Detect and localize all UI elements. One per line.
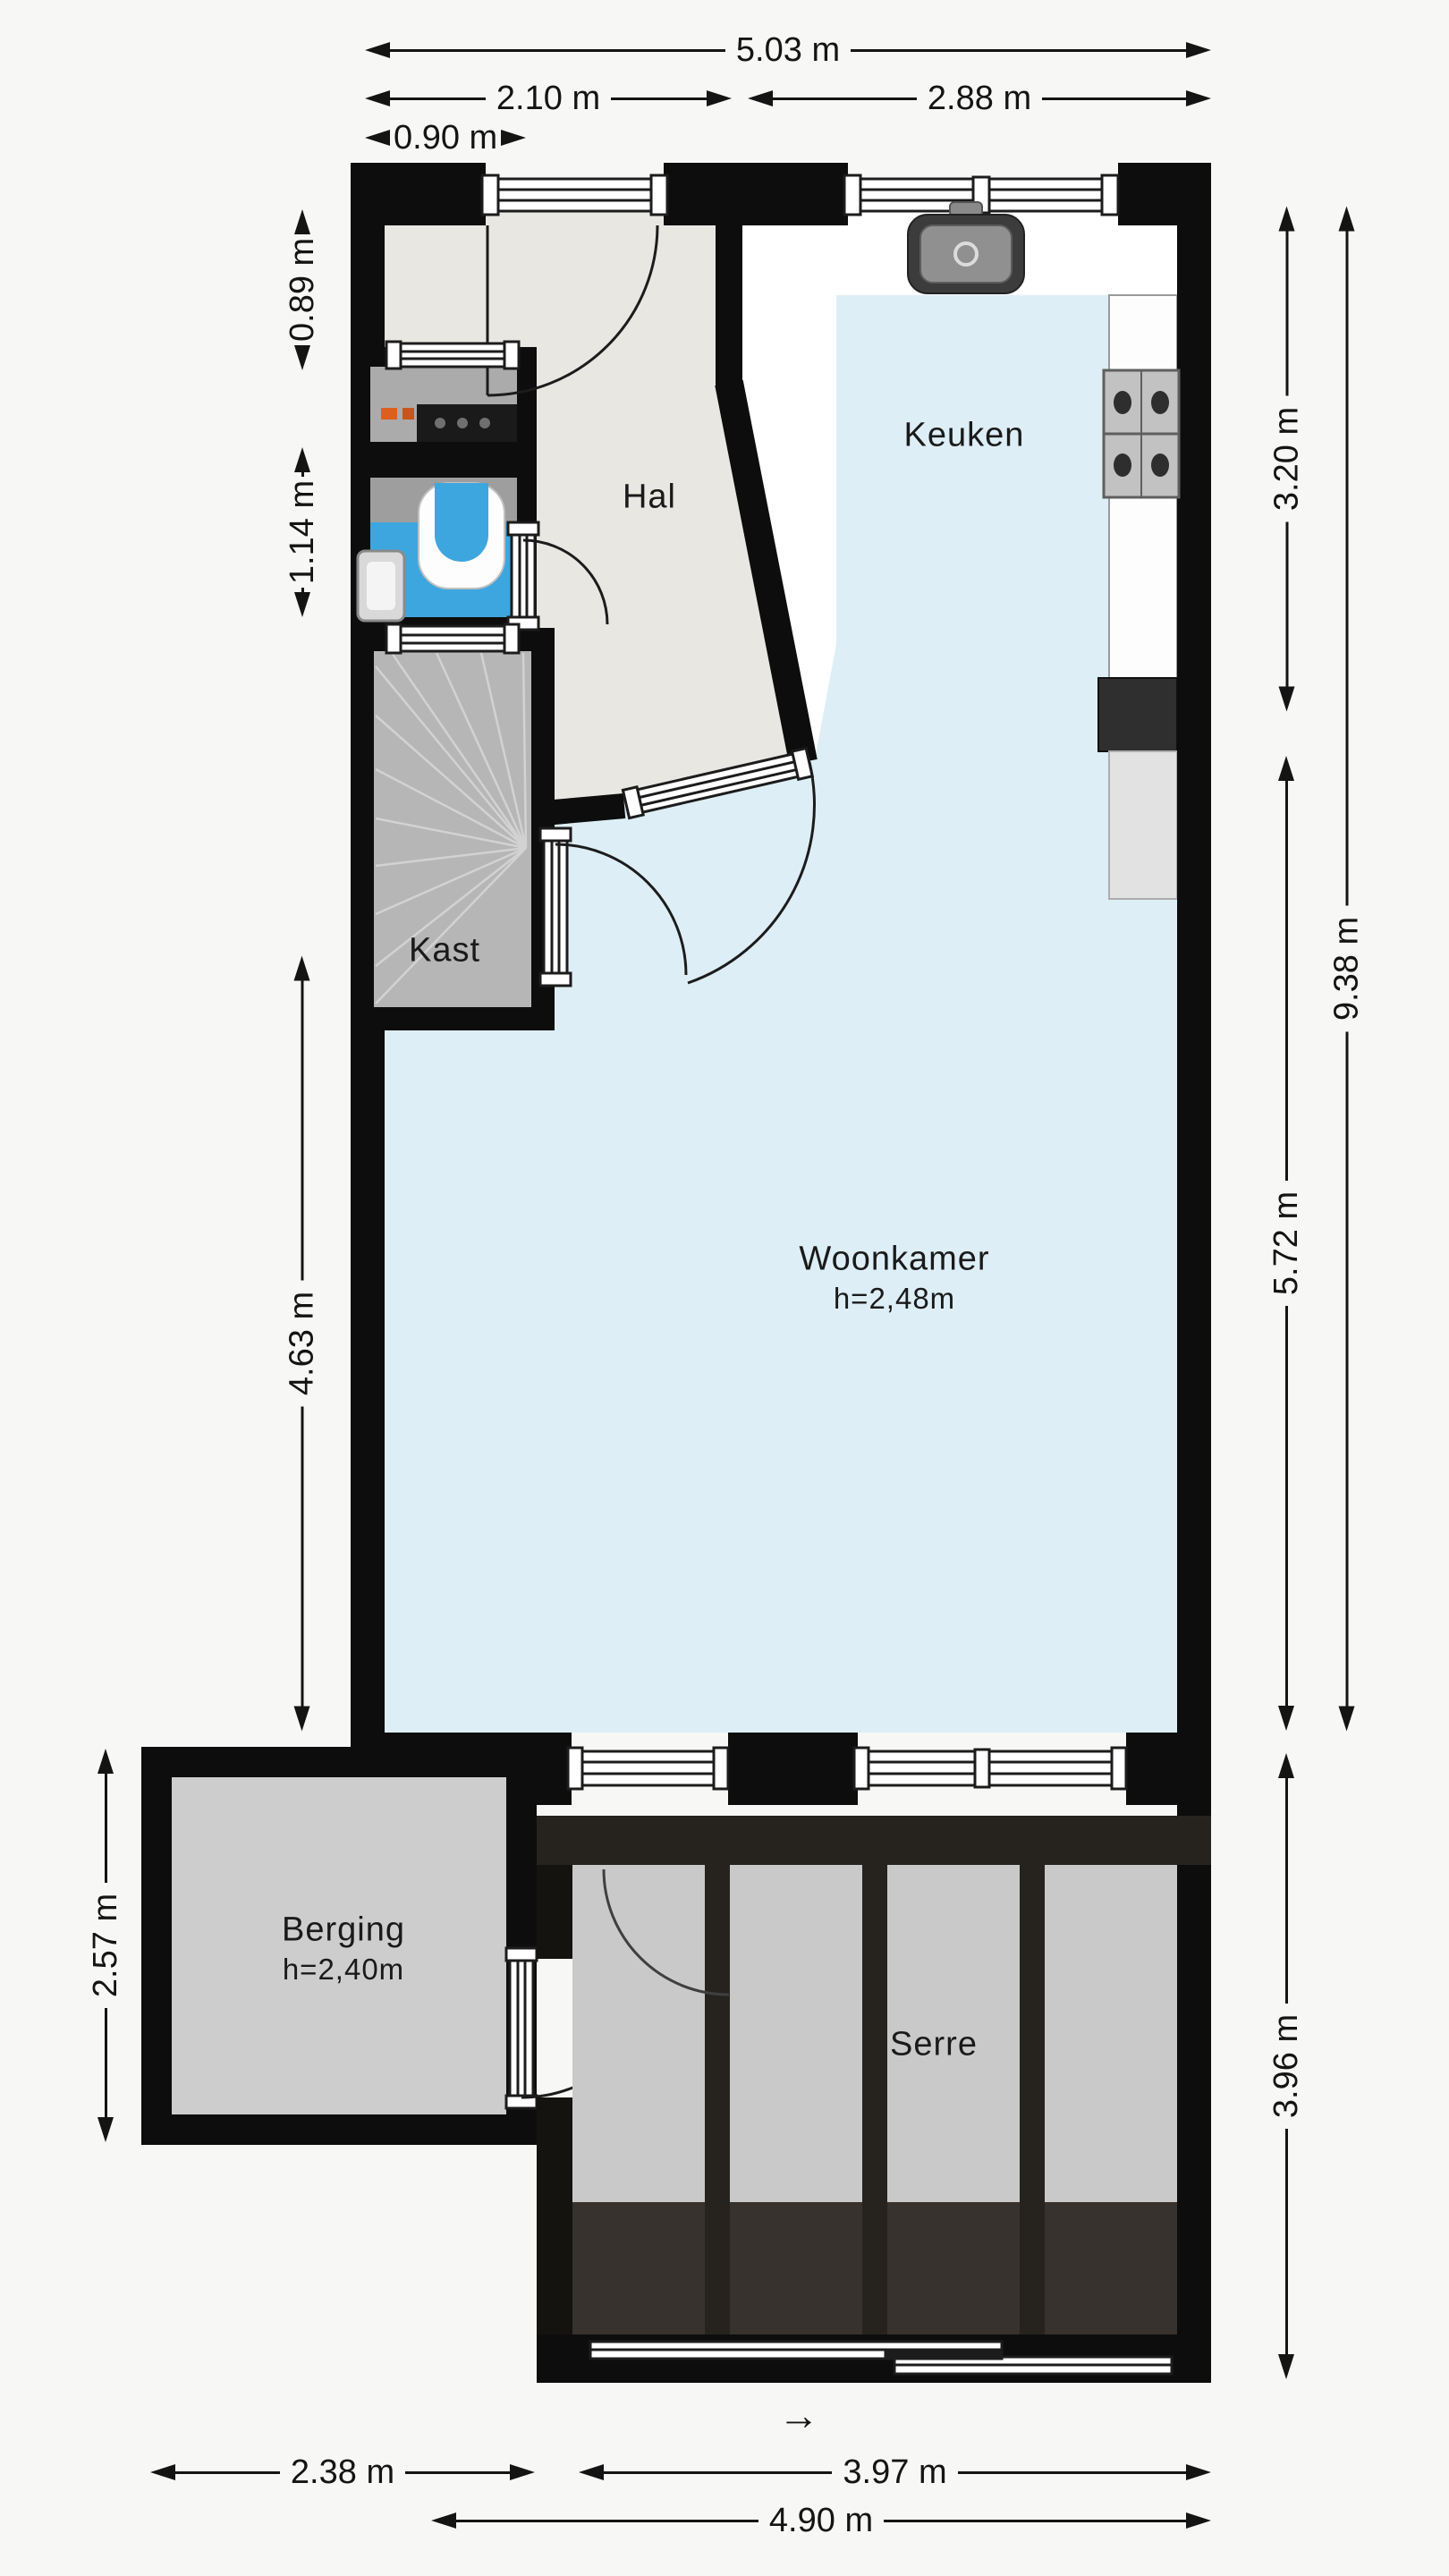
serre-left-wall-lower xyxy=(537,2097,572,2334)
arrow-left-icon xyxy=(365,130,390,146)
kast-room xyxy=(351,628,555,1030)
arrow-right-icon xyxy=(294,209,310,234)
kitchen-counter-lower xyxy=(1109,751,1177,899)
floor-plan-drawing xyxy=(0,0,1449,2576)
arrow-right-icon xyxy=(1339,206,1355,231)
arrow-right-icon xyxy=(294,955,310,980)
arrow-left-icon xyxy=(1339,1707,1355,1732)
arrow-right-icon xyxy=(501,130,526,146)
dim-bottom-total: 4.90 m xyxy=(431,2502,1211,2539)
arrow-left-icon xyxy=(748,90,773,106)
arrow-left-icon xyxy=(1278,1706,1294,1731)
dim-left-meterkast: 0.89 m xyxy=(284,215,321,370)
serre-top-beam xyxy=(537,1816,1211,1865)
arrow-right-icon xyxy=(97,1749,114,1774)
wall-right xyxy=(1177,163,1211,2383)
meter-dot xyxy=(435,418,445,428)
meter-cupboard-door xyxy=(386,342,519,369)
toilet-bowl-opening xyxy=(435,483,488,562)
room-label-keuken: Keuken xyxy=(904,417,1025,455)
wall-top-2 xyxy=(664,163,848,225)
dim-top-total: 5.03 m xyxy=(365,31,1211,69)
arrow-right-icon xyxy=(1186,2512,1211,2529)
kitchen-dark-unit xyxy=(1098,678,1177,751)
arrow-right-icon xyxy=(510,2464,535,2480)
kast-door xyxy=(386,624,519,653)
wall-top-1 xyxy=(351,163,486,225)
arrow-right-icon xyxy=(294,447,310,472)
dim-bottom-serre: 3.97 m xyxy=(579,2453,1211,2491)
arrow-right-icon xyxy=(1186,90,1211,106)
toilet-room xyxy=(351,458,537,628)
wall-top-3 xyxy=(1118,163,1211,225)
wall-south-2 xyxy=(728,1733,858,1805)
dim-left-woonkamer: 4.63 m xyxy=(284,956,321,1732)
arrow-right-icon xyxy=(1186,2464,1211,2480)
dim-left-toilet: 1.14 m xyxy=(284,447,321,617)
dim-left-berging: 2.57 m xyxy=(87,1749,124,2142)
arrow-left-icon xyxy=(294,592,310,617)
arrow-left-icon xyxy=(1279,687,1295,712)
serre-mullion xyxy=(705,1865,730,2334)
dim-right-keuken: 3.20 m xyxy=(1268,207,1306,712)
arrow-right-icon xyxy=(1279,206,1295,231)
serre-mullion xyxy=(1020,1865,1045,2334)
arrow-left-icon xyxy=(579,2464,604,2480)
room-height-berging: h=2,40m xyxy=(283,1953,404,1987)
south-window-2 xyxy=(854,1748,1126,1789)
dim-right-serre: 3.96 m xyxy=(1267,1753,1305,2379)
serre-mullion xyxy=(862,1865,887,2334)
meter-dot xyxy=(457,418,468,428)
washbasin-bowl xyxy=(367,562,395,610)
arrow-left-icon xyxy=(365,90,390,106)
arrow-left-icon xyxy=(294,345,310,370)
dim-top-hal: 2.10 m xyxy=(365,80,732,117)
fuse-box-icon xyxy=(381,408,397,419)
room-label-kast: Kast xyxy=(409,932,480,970)
front-door xyxy=(482,175,667,215)
meter-dot xyxy=(479,418,490,428)
stove-icon xyxy=(1104,370,1179,497)
arrow-left-icon xyxy=(294,1707,310,1732)
arrow-left-icon xyxy=(150,2464,175,2480)
dim-right-total: 9.38 m xyxy=(1328,207,1366,1732)
arrow-right-icon xyxy=(707,90,732,106)
room-label-hal: Hal xyxy=(623,479,676,517)
sink-icon xyxy=(908,202,1024,293)
arrow-right-icon xyxy=(1278,1753,1294,1778)
room-height-woonkamer: h=2,48m xyxy=(834,1282,955,1316)
arrow-left-icon xyxy=(365,42,390,58)
dim-top-entry: 0.90 m xyxy=(365,119,523,157)
room-label-berging: Berging xyxy=(282,1911,405,1950)
arrow-left-icon xyxy=(431,2512,456,2529)
fuse-box-icon xyxy=(402,408,414,419)
arrow-right-icon xyxy=(1278,756,1294,781)
room-label-woonkamer: Woonkamer xyxy=(799,1241,989,1279)
floor-plan: Hal Keuken Kast Woonkamer h=2,48m Bergin… xyxy=(0,0,1449,2576)
slide-direction-arrow: → xyxy=(778,2391,819,2439)
wall-hal-partition xyxy=(716,200,742,388)
serre-left-wall-upper xyxy=(537,1865,572,1959)
arrow-left-icon xyxy=(97,2117,114,2142)
dim-bottom-berging: 2.38 m xyxy=(150,2453,535,2491)
wall-hal-bottom xyxy=(544,806,624,813)
arrow-left-icon xyxy=(1278,2354,1294,2379)
south-window-1 xyxy=(568,1748,728,1789)
serre-room xyxy=(537,1816,1211,2383)
wall-south-3 xyxy=(1126,1733,1211,1805)
dim-right-woonkamer: 5.72 m xyxy=(1267,756,1305,1731)
room-label-serre: Serre xyxy=(890,2026,978,2064)
arrow-right-icon xyxy=(1186,42,1211,58)
dim-top-keuken: 2.88 m xyxy=(748,80,1211,117)
